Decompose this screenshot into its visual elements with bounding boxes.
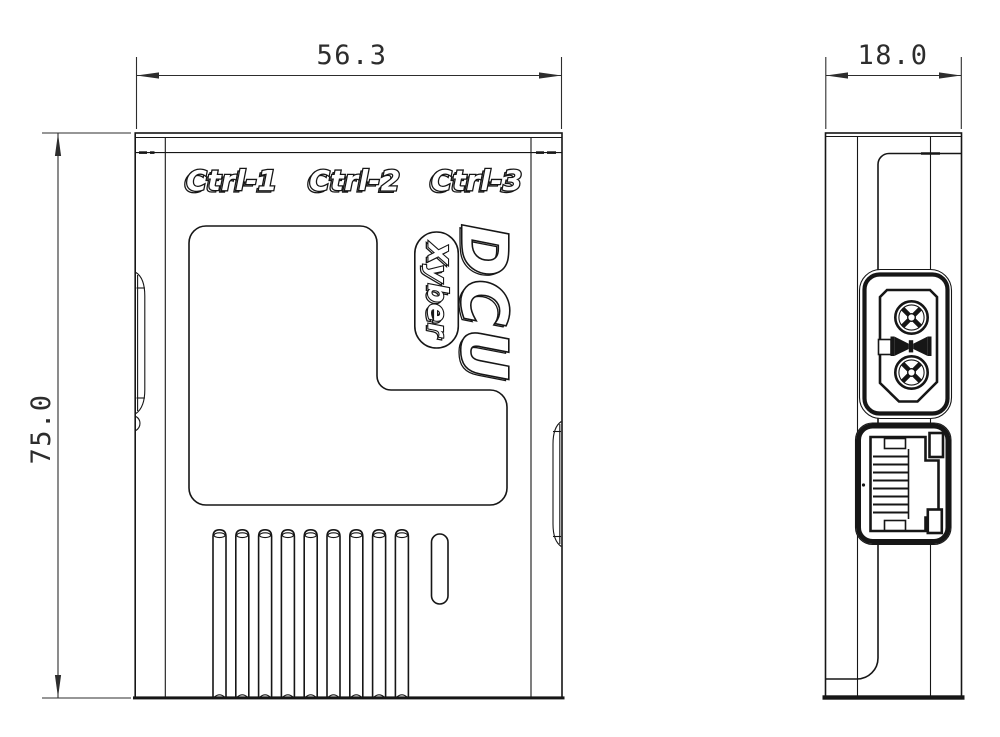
reset-slot [432,534,449,604]
ctrl3-label: Ctrl-3 [431,164,522,197]
side-bottom-edge [823,695,965,699]
vent-rib [281,530,294,697]
led-window-top [930,433,944,457]
port-labels: Ctrl-1 Ctrl-1 Ctrl-2 Ctrl-2 Ctrl-3 Ctrl-… [184,164,523,199]
arrowhead-down [55,675,61,698]
vent-rib [327,530,340,697]
dimension-front-height: 75.0 [26,133,131,698]
arrowhead-right [539,72,562,78]
arrowhead-up [55,134,61,157]
front-view: 56.3 75.0 Ctrl-1 Ctrl-1 Ctrl-2 [26,40,565,699]
right-side-clip [553,422,561,547]
ethernet-connector [856,423,952,545]
arrowhead-left [826,72,848,78]
vent-rib [213,530,226,697]
vent-rib [373,530,386,697]
power-pin-top [895,301,927,333]
power-connector [860,270,952,419]
dimension-front-width: 56.3 [137,40,562,129]
front-body-outline [135,133,562,698]
left-side-clip [136,273,145,431]
vent-ribs [213,530,408,697]
power-pin-bottom [895,356,927,388]
arrowhead-right [939,72,961,78]
housing-pin-dot [862,483,865,486]
led-window-bottom [928,510,942,534]
vent-rib [350,530,363,697]
rj45-latch-tab-top [885,439,906,449]
vent-rib [236,530,249,697]
rj45-latch-tab-bottom [885,521,906,531]
arrowhead-left [137,72,160,78]
ctrl1-label: Ctrl-1 [186,164,277,197]
dimension-value-width: 56.3 [316,40,387,71]
vent-rib [304,530,317,697]
vent-rib [395,530,408,697]
dimension-value-height: 75.0 [26,393,57,464]
ctrl2-label: Ctrl-2 [309,164,400,197]
dimension-value-depth: 18.0 [857,40,928,71]
dimension-side-depth: 18.0 [826,40,962,129]
connector-key-tab [879,340,892,355]
vent-rib [259,530,272,697]
body-silhouette [135,133,562,698]
brand-logo-text: Xyber [422,241,453,338]
brand-badge: Xyber Xyber [415,232,459,348]
front-bottom-edge [133,696,565,699]
technical-drawing-canvas: 56.3 75.0 Ctrl-1 Ctrl-1 Ctrl-2 [0,0,1000,737]
side-view: 18.0 [823,40,965,700]
